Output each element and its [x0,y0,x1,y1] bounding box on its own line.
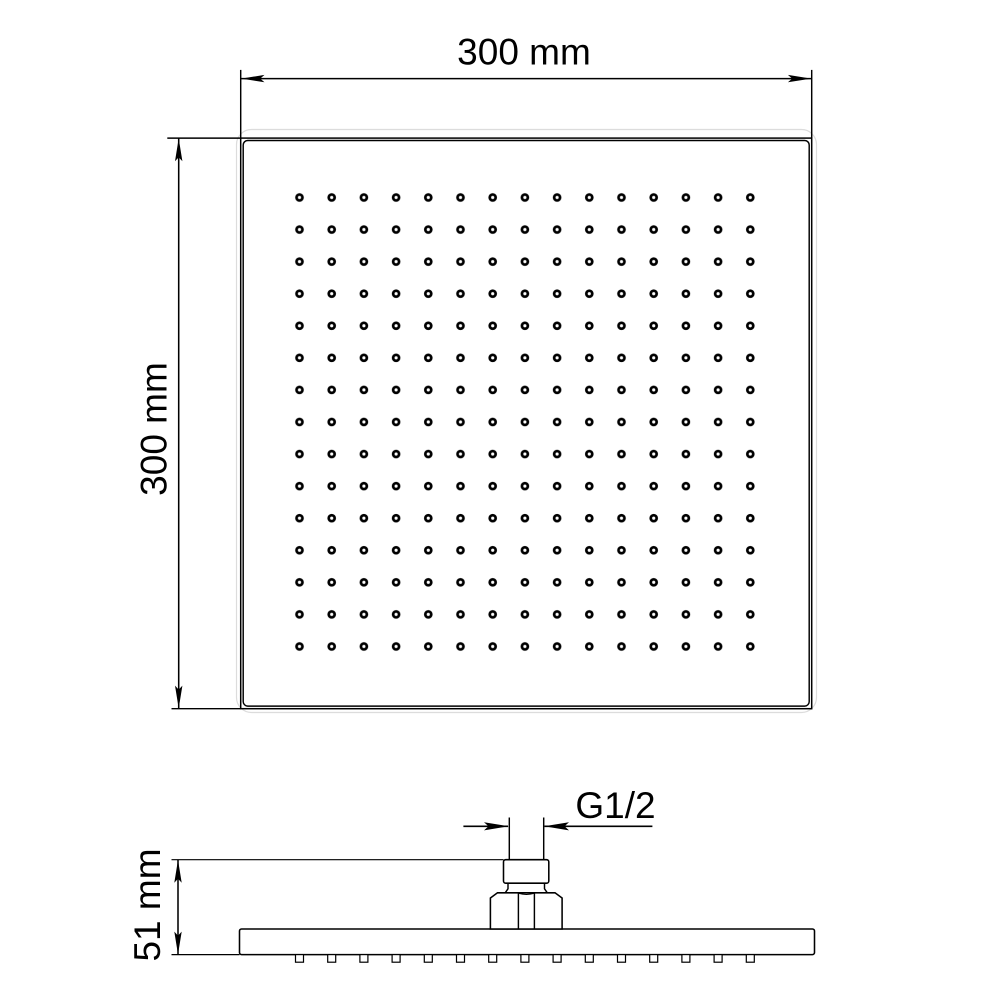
svg-text:51 mm: 51 mm [127,848,168,961]
svg-text:300 mm: 300 mm [457,32,591,73]
svg-text:300 mm: 300 mm [134,362,175,496]
svg-text:G1/2: G1/2 [575,785,655,826]
